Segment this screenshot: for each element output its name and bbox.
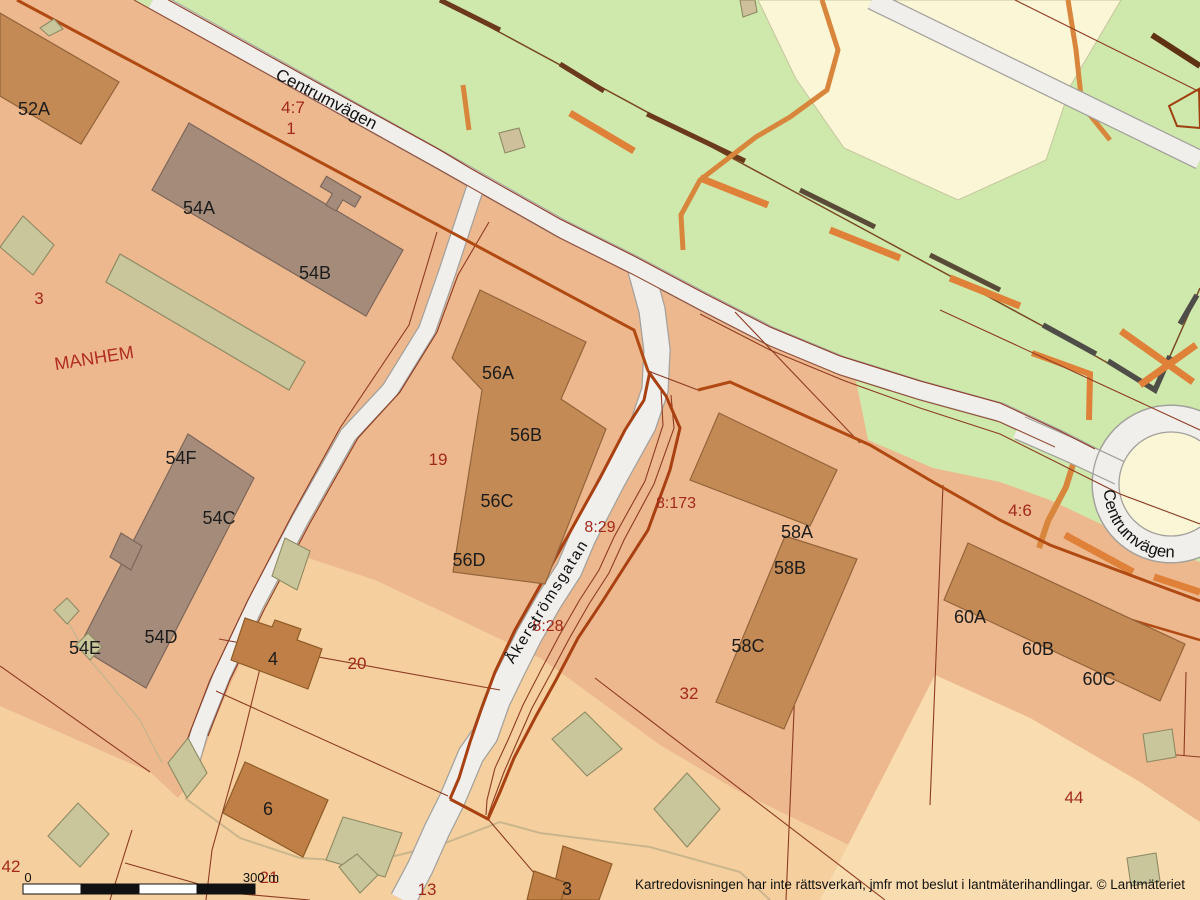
svg-text:8:173: 8:173 [656,495,696,512]
svg-text:32: 32 [680,684,699,703]
svg-text:60B: 60B [1022,639,1054,659]
svg-text:42: 42 [2,857,21,876]
svg-text:58A: 58A [781,522,813,542]
svg-text:54C: 54C [202,508,235,528]
svg-text:3: 3 [562,879,572,899]
svg-text:6: 6 [263,799,273,819]
svg-text:56A: 56A [482,363,514,383]
svg-text:1: 1 [286,119,295,138]
svg-text:Kartredovisningen har inte rät: Kartredovisningen har inte rättsverkan, … [635,877,1185,892]
svg-text:20: 20 [348,654,367,673]
svg-text:4:7: 4:7 [281,98,305,117]
svg-text:0: 0 [24,870,31,885]
svg-text:44: 44 [1065,788,1084,807]
svg-text:54B: 54B [299,263,331,283]
svg-text:60C: 60C [1082,669,1115,689]
svg-text:3: 3 [34,289,43,308]
svg-text:4:6: 4:6 [1008,501,1032,520]
svg-text:54F: 54F [165,448,196,468]
svg-text:58B: 58B [774,558,806,578]
svg-text:4: 4 [268,649,278,669]
svg-text:54D: 54D [144,627,177,647]
svg-text:58C: 58C [731,636,764,656]
svg-text:13: 13 [418,880,437,899]
svg-text:54A: 54A [183,198,215,218]
svg-text:52A: 52A [18,99,50,119]
svg-text:60A: 60A [954,607,986,627]
svg-text:54E: 54E [69,638,101,658]
svg-text:300 m: 300 m [243,870,279,885]
svg-text:8:29: 8:29 [584,519,615,536]
svg-text:56C: 56C [480,491,513,511]
svg-text:56B: 56B [510,425,542,445]
svg-text:56D: 56D [452,550,485,570]
svg-text:19: 19 [429,450,448,469]
